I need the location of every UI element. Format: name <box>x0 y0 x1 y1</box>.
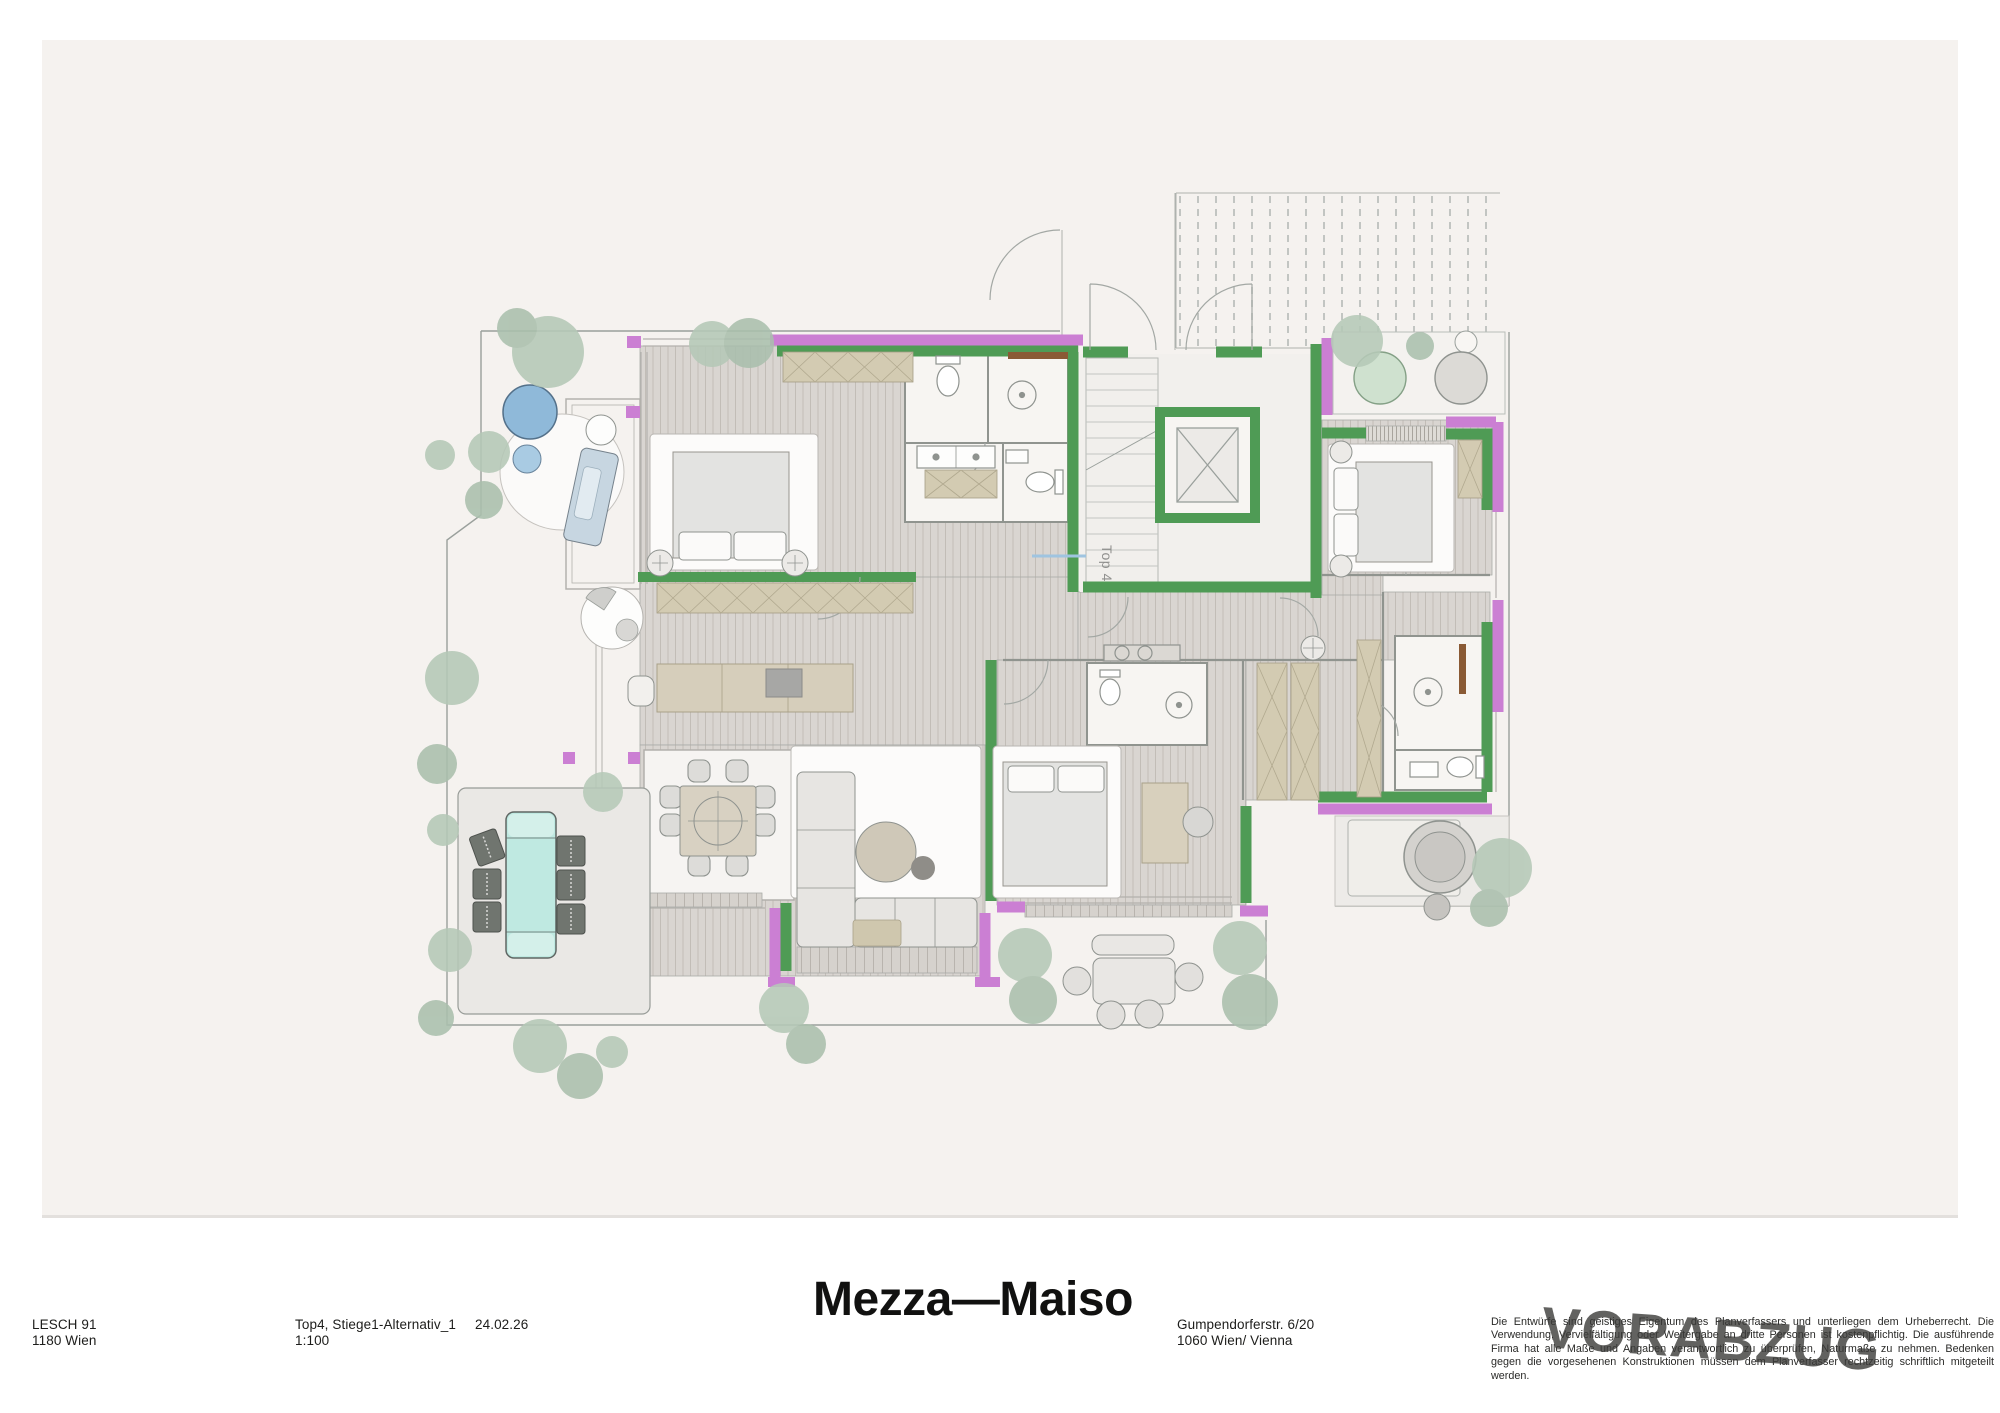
copyright-disclaimer: Die Entwürfe sind geistiges Eigentum des… <box>1491 1316 1994 1383</box>
plan-date: 24.02.26 <box>475 1317 528 1333</box>
office-name: LESCH 91 <box>32 1317 97 1333</box>
elevator <box>1160 412 1255 518</box>
master-bedroom-furniture <box>647 434 818 576</box>
kitchen <box>628 664 853 712</box>
floor-plan-drawing: Top 4 <box>0 0 2000 1413</box>
titleblock-office: LESCH 91 1180 Wien <box>32 1317 97 1349</box>
address-city: 1060 Wien/ Vienna <box>1177 1333 1314 1349</box>
drawing-name: Top4, Stiege1-Alternativ_1 <box>295 1317 456 1333</box>
titleblock-drawing: Top4, Stiege1-Alternativ_1 1:100 <box>295 1317 456 1349</box>
unit-label: Top 4 <box>1099 545 1115 582</box>
living-room-furniture <box>791 746 981 947</box>
door-lintel <box>1008 352 1068 359</box>
bedroom2-furniture <box>1328 441 1454 577</box>
drawing-scale: 1:100 <box>295 1333 456 1349</box>
pool-area <box>458 788 650 1014</box>
titleblock-address: Gumpendorferstr. 6/20 1060 Wien/ Vienna <box>1177 1317 1314 1349</box>
address-street: Gumpendorferstr. 6/20 <box>1177 1317 1314 1333</box>
mirror-frame <box>1459 644 1466 694</box>
project-title: Mezza—Maiso <box>813 1272 1133 1327</box>
plan-sheet-page: Top 4 <box>0 0 2000 1413</box>
titleblock-date: 24.02.26 <box>475 1317 528 1333</box>
reading-nook <box>581 587 643 649</box>
office-city: 1180 Wien <box>32 1333 97 1349</box>
